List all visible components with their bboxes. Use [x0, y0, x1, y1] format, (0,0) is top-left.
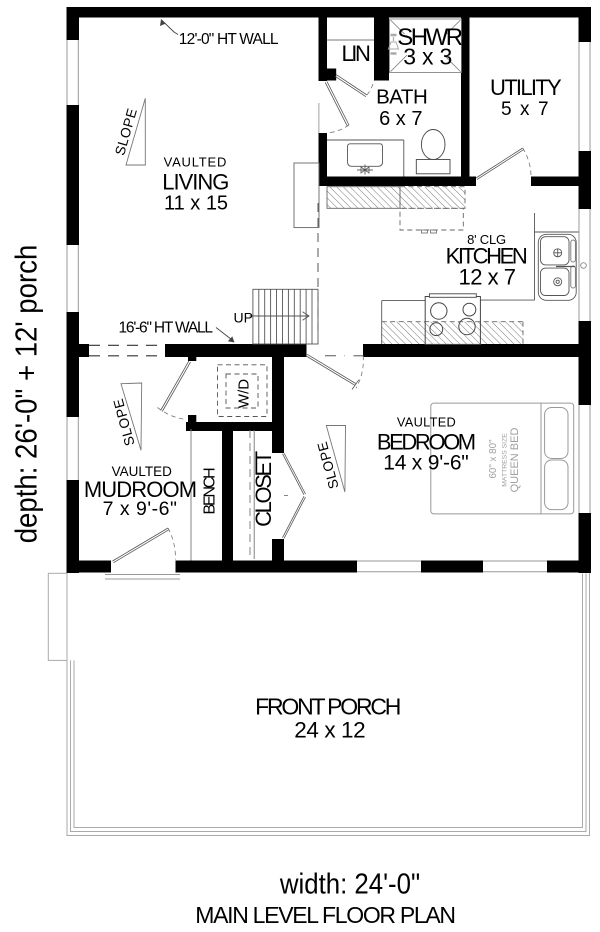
svg-text:LIVING: LIVING [162, 169, 228, 194]
svg-text:UTILITY: UTILITY [490, 75, 562, 100]
svg-text:BATH: BATH [376, 85, 427, 108]
svg-text:depth: 26'-0" + 12' porch: depth: 26'-0" + 12' porch [9, 245, 44, 544]
svg-text:60" x 80": 60" x 80" [488, 439, 499, 479]
svg-text:BENCH: BENCH [202, 468, 219, 515]
svg-text:14 x 9'-6": 14 x 9'-6" [383, 452, 468, 475]
svg-text:VAULTED: VAULTED [164, 155, 228, 170]
svg-text:MAIN LEVEL FLOOR PLAN: MAIN LEVEL FLOOR PLAN [195, 902, 454, 928]
svg-text:CLOSET: CLOSET [251, 451, 276, 527]
svg-text:5 x 7: 5 x 7 [501, 99, 550, 120]
svg-text:3 x 3: 3 x 3 [403, 44, 452, 70]
svg-text:VAULTED: VAULTED [397, 414, 456, 429]
svg-text:FRONT PORCH: FRONT PORCH [255, 694, 400, 720]
svg-text:7 x 9'-6": 7 x 9'-6" [103, 498, 178, 520]
svg-text:W/D: W/D [236, 379, 253, 408]
svg-text:16'-6" HT WALL: 16'-6" HT WALL [119, 320, 214, 337]
svg-text:11 x 15: 11 x 15 [164, 192, 228, 214]
svg-text:MATTRESS SIZE: MATTRESS SIZE [502, 433, 509, 487]
svg-text:24 x 12: 24 x 12 [294, 718, 365, 743]
svg-text:12 x 7: 12 x 7 [459, 265, 516, 290]
svg-text:LIN: LIN [341, 41, 370, 66]
svg-text:width: 24'-0": width: 24'-0" [279, 867, 420, 900]
svg-text:12'-0" HT WALL: 12'-0" HT WALL [179, 31, 279, 48]
svg-text:6 x 7: 6 x 7 [379, 108, 422, 130]
svg-text:QUEEN BED: QUEEN BED [509, 428, 521, 493]
svg-text:UP: UP [234, 309, 253, 325]
